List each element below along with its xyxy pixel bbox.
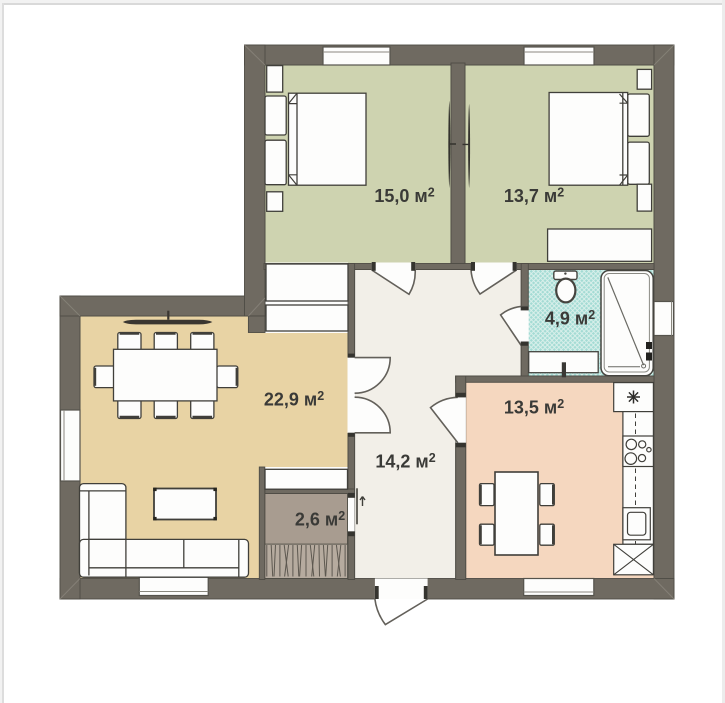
- svg-text:22,9 м2: 22,9 м2: [264, 389, 324, 410]
- svg-text:15,0 м2: 15,0 м2: [374, 186, 434, 207]
- svg-text:4,9 м2: 4,9 м2: [545, 308, 595, 329]
- svg-text:14,2 м2: 14,2 м2: [375, 451, 435, 472]
- svg-text:13,5 м2: 13,5 м2: [504, 397, 564, 418]
- svg-text:13,7 м2: 13,7 м2: [504, 186, 564, 207]
- svg-text:2,6 м2: 2,6 м2: [295, 509, 345, 530]
